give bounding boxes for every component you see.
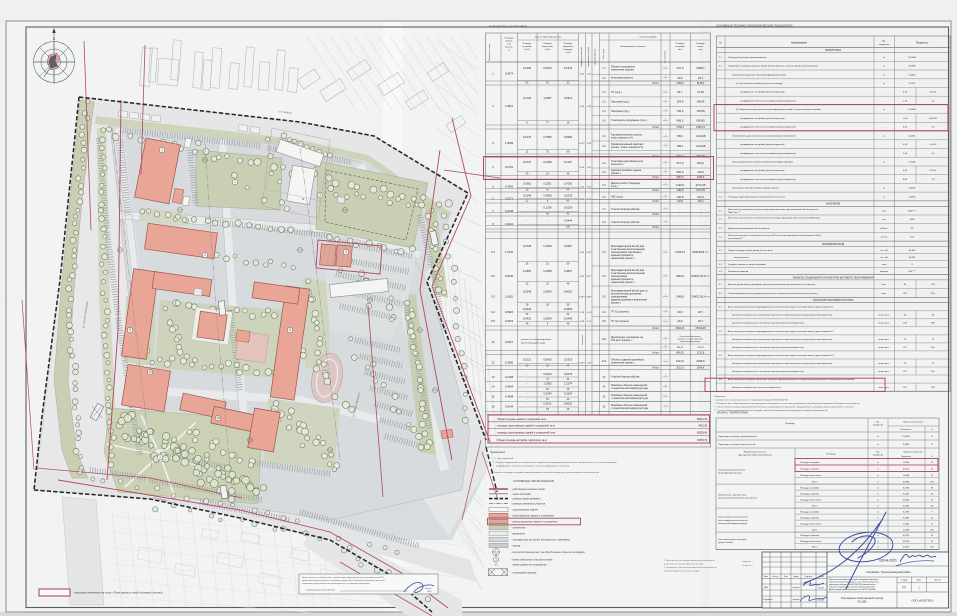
svg-text:0,2294: 0,2294 <box>543 392 552 396</box>
svg-text:0,1024: 0,1024 <box>564 194 573 198</box>
svg-text:0,0503: 0,0503 <box>564 307 573 311</box>
svg-text:9.5: 9.5 <box>602 320 606 323</box>
svg-text:-: - <box>680 376 681 379</box>
svg-text:0,0926: 0,0926 <box>505 310 514 314</box>
svg-text:(сущ.): (сущ.) <box>611 185 618 188</box>
svg-text:1,9910: 1,9910 <box>505 104 514 108</box>
svg-text:ТЕРРИТОРИИ: ТЕРРИТОРИИ <box>825 50 841 52</box>
svg-text:АЗС (сущ.): АЗС (сущ.) <box>611 196 623 199</box>
svg-text:не показано: не показано <box>582 335 584 345</box>
svg-text:1: 1 <box>665 195 666 197</box>
svg-text:-: - <box>700 221 701 224</box>
svg-text:установленных границ. Проектом: установленных границ. Проектом границы <box>664 564 704 566</box>
svg-text:(зона коммунальных объектов: (зона коммунальных объектов <box>718 520 748 522</box>
svg-text:Итого:: Итого: <box>653 127 660 129</box>
svg-text:0,2728: 0,2728 <box>523 244 532 248</box>
svg-text:80529,04: 80529,04 <box>697 432 708 435</box>
svg-text:Общеобразовательные учреждения: Общеобразовательные учреждения (расчетно… <box>728 293 818 295</box>
svg-text:3,4210: 3,4210 <box>903 469 910 471</box>
svg-text:1600****: 1600**** <box>908 211 916 213</box>
svg-text:-: - <box>527 393 528 396</box>
svg-text:1,0083: 1,0083 <box>505 141 514 145</box>
svg-text:-: - <box>527 220 528 223</box>
svg-text:маш.-мест: маш.-мест <box>879 387 890 389</box>
svg-text:20,0: 20,0 <box>677 319 683 323</box>
svg-text:ОСНОВНЫЕ ТЕХНИКО-ЭКОНОМИЧЕСКИ: ОСНОВНЫЕ ТЕХНИКО-ЭКОНОМИЧЕСКИЕ ПОКАЗАТЕЛ… <box>716 24 792 28</box>
svg-text:Площадь застройки: Площадь застройки <box>800 486 820 489</box>
svg-text:тыс. м2: тыс. м2 <box>880 257 888 259</box>
svg-text:-: - <box>700 386 701 389</box>
svg-text:0,0408: 0,0408 <box>543 160 552 164</box>
svg-text:9.1: 9.1 <box>491 250 495 254</box>
svg-text:0,4-0,85: 0,4-0,85 <box>929 118 938 120</box>
svg-text:0,2248: 0,2248 <box>505 209 514 213</box>
svg-text:уточнить на стадии подготовки: уточнить на стадии подготовки <box>521 339 552 341</box>
svg-text:13,3464: 13,3464 <box>908 57 917 59</box>
svg-text:маш.-мест: маш.-мест <box>879 363 890 365</box>
svg-text:Площадь: Площадь <box>523 43 531 45</box>
svg-text:0,2100: 0,2100 <box>523 66 532 70</box>
svg-text:га (%): га (%) <box>565 52 571 54</box>
svg-text:Итого:: Итого: <box>653 368 660 370</box>
svg-text:Зоны коммунальных объектов: Зоны коммунальных объектов <box>718 517 748 519</box>
svg-text:Итого:: Итого: <box>653 328 660 330</box>
svg-text:чел./га: чел./га <box>881 237 889 239</box>
svg-text:Общественно-деловая зона (мног: Общественно-деловая зона (многофункциона… <box>732 73 786 76</box>
svg-text:Зона коммунальных объектов инж: Зона коммунальных объектов инженерной ин… <box>732 161 793 164</box>
svg-text:План красных линий (основной ч: План красных линий (основной чертеж) <box>841 597 884 600</box>
svg-text:Зона жилых улиц В застройке (у: Зона жилых улиц В застройке (улица Сабит… <box>732 187 779 190</box>
svg-text:0,9436: 0,9436 <box>505 274 514 278</box>
svg-text:0,6015: 0,6015 <box>564 289 573 293</box>
svg-text:2,0108: 2,0108 <box>909 162 916 164</box>
svg-text:Автостоянки для хранения индив: Автостоянки для хранения индивидуального… <box>728 306 834 309</box>
svg-text:Площадь озеленения: Площадь озеленения <box>800 541 821 543</box>
svg-text:Детские дошкольные учреждения: Детские дошкольные учреждения (расчетное… <box>728 284 816 286</box>
svg-text:0,18**: 0,18** <box>579 297 585 299</box>
svg-text:Разработ.: Разработ. <box>763 599 773 601</box>
svg-text:1.1: 1.1 <box>602 67 606 70</box>
svg-text:коэффициент плотности застройк: коэффициент плотности застройки (проект.… <box>740 152 796 155</box>
svg-text:1: 1 <box>234 180 236 184</box>
svg-text:Китова: Китова <box>425 588 432 590</box>
svg-text:Проект выполнен в соответствии: Проект выполнен в соответствии с требова… <box>302 576 384 579</box>
svg-text:-: - <box>680 396 681 399</box>
svg-text:5098,7: 5098,7 <box>696 66 705 70</box>
svg-text:ТРАНСПОРТНАЯ ИНФРАСТРУКТУРА: ТРАНСПОРТНАЯ ИНФРАСТРУКТУРА <box>813 299 854 302</box>
svg-text:- номер земельного участка на: - номер земельного участка на плане <box>511 559 553 562</box>
svg-text:-: - <box>527 383 528 386</box>
svg-text:(зона объектов рекламного назн: (зона объектов рекламного назначения) <box>718 498 757 500</box>
svg-text:1: 1 <box>665 100 666 102</box>
svg-text:3.2: 3.2 <box>602 145 606 148</box>
svg-text:Кол-во этажей: Кол-во этажей <box>664 51 667 63</box>
svg-text:0,1021: 0,1021 <box>523 357 532 361</box>
svg-text:2: 2 <box>204 253 206 257</box>
svg-text:площадь проектируемых зданий и: площадь проектируемых зданий и сооружени… <box>497 432 556 435</box>
svg-text:1,1574: 1,1574 <box>564 382 573 386</box>
svg-text:-: - <box>680 386 681 389</box>
svg-text:Итого:: Итого: <box>653 83 660 85</box>
svg-text:застройки квартала: застройки квартала <box>594 49 597 65</box>
svg-text:на человека)***: на человека)*** <box>728 238 744 240</box>
svg-text:10.1: 10.1 <box>602 338 607 341</box>
svg-text:0,2722: 0,2722 <box>505 165 514 169</box>
svg-text:ТП №1 (проект.): ТП №1 (проект.) <box>611 311 629 314</box>
svg-text:Примечания: Примечания <box>490 450 506 454</box>
svg-text:2.2: 2.2 <box>602 101 606 104</box>
svg-text:Участки благоустройства: Участки благоустройства <box>611 221 640 224</box>
svg-text:1564,74: 1564,74 <box>696 126 705 129</box>
svg-text:0,1739: 0,1739 <box>903 511 910 513</box>
svg-text:7.1: 7.1 <box>602 208 606 211</box>
svg-text:786,1: 786,1 <box>677 144 684 148</box>
svg-text:БАЛАНС ТЕРРИТОРИИ: БАЛАНС ТЕРРИТОРИИ <box>717 411 748 415</box>
svg-text:636,85: 636,85 <box>696 118 705 122</box>
svg-text:Примечания: Примечания <box>714 396 726 398</box>
svg-text:-: - <box>527 403 528 406</box>
svg-text:- вносимые изменения на листе: - вносимые изменения на листе «План крас… <box>73 591 164 595</box>
svg-text:объектов добровольного число в: объектов добровольного число видов <box>664 571 699 573</box>
svg-text:функциональному использованию: функциональному использованию <box>738 454 772 457</box>
svg-text:21460,3 В,9 т.ч.: 21460,3 В,9 т.ч. <box>691 274 710 278</box>
svg-text:Проектные решения: Проектные решения <box>903 422 923 424</box>
svg-text:Площадь: Площадь <box>505 38 514 40</box>
svg-text:Средняя этажность жилой застро: Средняя этажность жилой застройки <box>728 263 766 266</box>
svg-text:1,9068: 1,9068 <box>903 475 910 477</box>
svg-text:0,34**: 0,34** <box>579 363 585 365</box>
svg-text:участка,: участка, <box>505 47 513 49</box>
svg-text:назначения (проект.): назначения (проект.) <box>611 281 635 284</box>
svg-text:Площадь застройки: Площадь застройки <box>800 461 820 464</box>
svg-text:%: % <box>931 436 933 438</box>
svg-text:0,5005: 0,5005 <box>903 547 910 549</box>
svg-text:1,0811: 1,0811 <box>505 295 514 299</box>
svg-text:Всего: Всего <box>812 529 818 531</box>
svg-text:Главный архитектор проекта: Главный архитектор проекта <box>306 589 336 592</box>
svg-text:УСЛОВНЫЕ ОБОЗНАЧЕНИЯ: УСЛОВНЫЕ ОБОЗНАЧЕНИЯ <box>513 479 554 483</box>
svg-text:20,0: 20,0 <box>677 310 683 314</box>
svg-text:0,7992: 0,7992 <box>505 185 514 189</box>
svg-text:70,53: 70,53 <box>697 90 704 94</box>
svg-text:896,25: 896,25 <box>677 347 684 349</box>
svg-text:2021г.: 2021г. <box>427 591 432 593</box>
svg-text:2,4634: 2,4634 <box>505 385 514 389</box>
svg-text:1: 1 <box>665 91 666 93</box>
svg-text:ГАП: ГАП <box>764 586 768 589</box>
svg-text:Показатель: Показатель <box>901 456 911 458</box>
svg-text:2221,8: 2221,8 <box>697 352 705 355</box>
svg-text:5.1: 5.1 <box>602 184 606 187</box>
svg-text:Зона жилых улиц в застройке: Зона жилых улиц в застройке <box>718 538 747 541</box>
svg-text:2.4: 2.4 <box>602 119 606 122</box>
svg-text:4.1: 4.1 <box>602 162 606 165</box>
svg-text:-: - <box>527 373 528 376</box>
svg-text:09.2021: 09.2021 <box>818 588 825 590</box>
svg-text:0,0446: 0,0446 <box>564 316 573 320</box>
svg-text:0,16**: 0,16** <box>579 143 585 145</box>
svg-text:Участки благоустройства: Участки благоустройства <box>611 376 640 379</box>
svg-text:2046,6: 2046,6 <box>696 359 705 363</box>
svg-text:1: 1 <box>665 207 666 209</box>
svg-text:ТП (сущ.): ТП (сущ.) <box>611 91 622 94</box>
svg-text:560,0: 560,0 <box>677 170 684 174</box>
svg-text:0,4-0,8: 0,4-0,8 <box>930 144 938 146</box>
svg-text:Наименование объектов: Наименование объектов <box>620 46 646 48</box>
svg-text:845****: 845**** <box>908 271 915 273</box>
svg-text:Коэффициент плотности: Коэффициент плотности <box>587 47 590 67</box>
svg-text:Площадь покрытий: Площадь покрытий <box>800 516 820 519</box>
svg-text:15: 15 <box>492 395 495 399</box>
svg-text:9,5398: 9,5398 <box>909 66 916 68</box>
svg-text:12: 12 <box>492 361 495 365</box>
svg-text:нормативов градостроительного: нормативов градостроительного проектиров… <box>302 583 369 585</box>
svg-text:0,6952: 0,6952 <box>564 135 573 139</box>
svg-text:Площадь озеленения: Площадь озеленения <box>800 475 821 477</box>
svg-text:843,0: 843,0 <box>697 161 704 165</box>
svg-text:ООО «АСБ ГИС»: ООО «АСБ ГИС» <box>911 599 934 603</box>
svg-text:(проект., класс опасности V): (проект., класс опасности V) <box>611 146 643 149</box>
svg-text:13,3404: 13,3404 <box>902 436 910 438</box>
svg-text:1190,5: 1190,5 <box>676 183 685 187</box>
svg-text:2,5***: 2,5*** <box>586 276 592 278</box>
svg-text:Насосная (сущ.): Насосная (сущ.) <box>611 100 630 103</box>
svg-text:проектной документации: проектной документации <box>680 340 700 343</box>
svg-text:0,2109: 0,2109 <box>543 372 552 376</box>
svg-text:сборку и на: сборку и на <box>742 565 754 567</box>
svg-text:745,95: 745,95 <box>696 109 705 113</box>
svg-text:6.1: 6.1 <box>602 196 606 199</box>
svg-text:3.1: 3.1 <box>602 135 606 138</box>
svg-text:5: 5 <box>289 328 291 332</box>
svg-text:Листов: Листов <box>934 580 942 582</box>
svg-text:-: - <box>700 396 701 399</box>
svg-text:Стадия: Стадия <box>900 580 907 582</box>
svg-text:0,1625: 0,1625 <box>543 244 552 248</box>
svg-text:14: 14 <box>492 385 495 389</box>
svg-text:- существующие здания: - существующие здания <box>511 509 538 512</box>
svg-text:(улица Сабита): (улица Сабита) <box>718 542 733 544</box>
svg-text:-: - <box>680 406 681 409</box>
svg-text:Наименование зоны по: Наименование зоны по <box>744 451 767 453</box>
svg-text:Автостоянки для хранения индив: Автостоянки для хранения индивидуального… <box>728 330 834 333</box>
svg-text:1: 1 <box>665 161 666 163</box>
svg-text:1: 1 <box>665 405 666 407</box>
svg-text:Участки благоустройства: Участки благоустройства <box>611 208 640 211</box>
svg-text:0,5005: 0,5005 <box>909 188 916 190</box>
svg-text:- границы проектирования: - границы проектирования <box>511 498 541 501</box>
svg-text:М1:1000: М1:1000 <box>858 602 868 604</box>
svg-text:4: 4 <box>345 250 347 254</box>
svg-text:Всего: Всего <box>812 547 818 549</box>
svg-text:9.3: 9.3 <box>602 296 606 299</box>
svg-text:Автостоянки для хранения индив: Автостоянки для хранения индивидуального… <box>728 354 834 357</box>
svg-text:Количество машино-мест (расче: Количество машино-мест (расчетное/принят… <box>732 387 781 389</box>
svg-text:графикой: графикой <box>742 560 751 563</box>
svg-text:%: % <box>931 429 933 431</box>
svg-text:Площадь озеленения: Площадь озеленения <box>800 499 821 501</box>
svg-text:2. Параметры существующих об: 2. Параметры существующих объектов благо… <box>664 566 717 569</box>
svg-text:0,0054: 0,0054 <box>543 316 552 320</box>
svg-text:1: 1 <box>665 109 666 111</box>
svg-text:0,4402: 0,4402 <box>909 135 916 137</box>
svg-text:3409,98 В т.ч.: 3409,98 В т.ч. <box>692 250 709 254</box>
svg-text:1: 1 <box>665 395 666 397</box>
svg-text:1: 1 <box>665 385 666 387</box>
svg-text:1: 1 <box>665 183 666 185</box>
svg-text:44,483: 44,483 <box>909 257 916 259</box>
svg-text:коэффициента плотности застрой: коэффициента плотности застройки, а так … <box>496 465 570 468</box>
svg-text:1881,0: 1881,0 <box>676 274 685 278</box>
svg-text:класс опасности V): класс опасности V) <box>611 137 633 140</box>
svg-text:** - Получить разрешение на о: ** - Получить разрешение на отклонение о… <box>492 462 617 464</box>
svg-text:чел.: чел. <box>882 211 887 213</box>
svg-text:ПП: ПП <box>902 588 906 590</box>
svg-text:измерения: измерения <box>873 455 883 457</box>
svg-text:(многофункциональная): (многофункциональная) <box>718 472 742 475</box>
svg-text:0,0923: 0,0923 <box>505 319 514 323</box>
svg-text:га (%): га (%) <box>545 49 551 51</box>
svg-text:140,8: 140,8 <box>677 195 684 199</box>
svg-text:Коэффициент застройки: Коэффициент застройки <box>580 47 583 67</box>
svg-text:Техническое сооружение (сущ.): Техническое сооружение (сущ.) <box>611 119 647 122</box>
svg-text:Кол.уч: Кол.уч <box>773 576 779 578</box>
svg-text:0,1614: 0,1614 <box>903 493 910 495</box>
svg-text:Лист: Лист <box>917 580 922 582</box>
svg-text:Котельная (проект.): Котельная (проект.) <box>611 77 633 80</box>
svg-text:озеленения,: озеленения, <box>542 46 553 48</box>
svg-text:1414,98: 1414,98 <box>696 134 706 138</box>
svg-text:маш.-мест: маш.-мест <box>879 339 890 341</box>
svg-text:коэффициент застройки (проект.: коэффициент застройки (проект./норматив) <box>740 91 785 94</box>
svg-text:0,1018: 0,1018 <box>564 206 573 210</box>
svg-text:1,05**: 1,05** <box>586 297 592 299</box>
svg-text:696,5: 696,5 <box>677 118 684 122</box>
svg-text:4912,28: 4912,28 <box>698 425 707 428</box>
svg-text:* - 1 этаж подземный.: * - 1 этаж подземный. <box>492 457 514 460</box>
svg-text:1: 1 <box>665 220 666 222</box>
svg-text:1021,0: 1021,0 <box>676 359 685 363</box>
svg-text:Площадь озеленения: Площадь озеленения <box>800 523 821 525</box>
svg-text:*** - Расчет балансов наличия: *** - Расчет балансов наличия нормативно… <box>714 406 853 409</box>
svg-text:правилами землепользования и з: правилами землепользования и застройки, … <box>302 579 385 582</box>
svg-text:270+: 270+ <box>931 371 937 373</box>
svg-text:Общественно - деловая зона: Общественно - деловая зона <box>718 494 747 496</box>
svg-text:85441,33: 85441,33 <box>697 418 708 421</box>
svg-text:-: - <box>527 207 528 210</box>
svg-text:0,1070: 0,1070 <box>523 135 532 139</box>
svg-text:21403,3 В,4 т.ч.: 21403,3 В,4 т.ч. <box>691 295 710 299</box>
svg-text:0,3444: 0,3444 <box>505 222 514 226</box>
svg-text:Ед.: Ед. <box>876 422 880 424</box>
svg-text:220+: 220+ <box>931 293 937 295</box>
svg-text:Территория в границах красных: Территория в границах красных линий жило… <box>728 65 819 68</box>
svg-text:2221,8: 2221,8 <box>697 347 704 349</box>
svg-text:0,7030: 0,7030 <box>564 181 573 185</box>
svg-text:0,0615: 0,0615 <box>543 66 552 70</box>
svg-text:0,6023: 0,6023 <box>564 402 573 406</box>
svg-text:Баланс территории участка: Баланс территории участка <box>535 37 562 39</box>
svg-text:многоэтажных: многоэтажных <box>734 257 749 259</box>
svg-text:коэффициент плотности застройк: коэффициент плотности застройки (проект.… <box>740 126 796 129</box>
svg-text:Китова: Китова <box>792 587 800 589</box>
svg-text:- реконструируемое здание и со: - реконструируемое здание и сооружение <box>511 521 558 524</box>
svg-text:2.3: 2.3 <box>602 110 606 113</box>
svg-text:0,1230: 0,1230 <box>543 206 552 210</box>
svg-text:мест: мест <box>882 293 887 295</box>
svg-text:-: - <box>680 208 681 211</box>
svg-text:0,1227: 0,1227 <box>564 160 573 164</box>
svg-text:0,3296: 0,3296 <box>505 361 514 365</box>
svg-text:0,4074: 0,4074 <box>505 72 514 76</box>
svg-text:коэффициент застройки (проект.: коэффициент застройки (проект./норматив) <box>740 169 785 172</box>
svg-text:Лист: Лист <box>784 576 788 578</box>
svg-text:%: % <box>931 444 933 446</box>
svg-text:0,2887: 0,2887 <box>903 517 910 519</box>
svg-text:застройки,: застройки, <box>522 45 532 48</box>
svg-text:этаж: этаж <box>882 264 887 266</box>
svg-text:- пешеходный переход: - пешеходный переход <box>511 571 537 574</box>
svg-text:1948,5: 1948,5 <box>676 295 685 299</box>
svg-text:-: - <box>680 221 681 224</box>
svg-text:9.2: 9.2 <box>602 275 606 278</box>
svg-text:N по плану: N по плану <box>603 49 605 59</box>
svg-text:квартир: квартир <box>880 271 889 273</box>
svg-text:г.Челябинск, Тракторозаводски: г.Челябинск, Тракторозаводский район <box>866 571 912 574</box>
svg-text:маш.-мест: маш.-мест <box>879 315 890 317</box>
svg-text:Площадь: Площадь <box>564 43 572 45</box>
svg-text:2046,6: 2046,6 <box>697 367 705 370</box>
svg-text:Площадь: Площадь <box>826 453 835 455</box>
svg-text:коэффициент застройки (проект.: коэффициент застройки (проект./норматив) <box>740 143 785 146</box>
svg-text:4,0866: 4,0866 <box>903 444 910 446</box>
svg-text:м2/чел.: м2/чел. <box>880 228 888 230</box>
svg-text:0,1881: 0,1881 <box>523 269 532 273</box>
svg-text:1: 1 <box>665 76 666 78</box>
svg-text:тыс. м2: тыс. м2 <box>880 250 888 252</box>
svg-text:1021,0: 1021,0 <box>676 367 684 370</box>
svg-text:Численность населения (согласн: Численность населения (согласно норматив… <box>728 208 819 211</box>
svg-text:0,3444: 0,3444 <box>564 219 573 223</box>
svg-text:Всего: Всего <box>812 481 818 483</box>
svg-text:2728,24: 2728,24 <box>675 250 685 254</box>
svg-text:0,9144: 0,9144 <box>505 405 514 409</box>
svg-text:Наименования: Наименования <box>791 43 808 45</box>
svg-text:0,6367: 0,6367 <box>564 244 573 248</box>
svg-text:(реконстр.): (реконстр.) <box>611 163 624 166</box>
svg-text:1,3052: 1,3052 <box>543 382 552 386</box>
svg-text:29,7: 29,7 <box>698 76 704 80</box>
svg-text:а) Зона жилой застройки, расче: а) Зона жилой застройки, расчетная площа… <box>736 82 784 85</box>
svg-text:9.3: 9.3 <box>491 295 495 299</box>
svg-text:застройки,: застройки, <box>675 45 685 48</box>
svg-text:0,2843: 0,2843 <box>543 289 552 293</box>
svg-text:Площадь: Площадь <box>676 43 684 45</box>
svg-text:1: 1 <box>665 295 666 297</box>
svg-text:0,2914: 0,2914 <box>564 96 573 100</box>
svg-text:9.4: 9.4 <box>491 310 495 314</box>
svg-text:Показатель: Показатель <box>916 43 929 45</box>
svg-text:0,0660: 0,0660 <box>543 357 552 361</box>
svg-text:0,0423: 0,0423 <box>523 316 532 320</box>
svg-text:Общественно-деловая зона: Общественно-деловая зона <box>718 470 746 472</box>
svg-text:6604,24: 6604,24 <box>676 327 685 330</box>
svg-text:100: 100 <box>566 226 571 229</box>
svg-text:(проект.): (проект.) <box>611 172 621 175</box>
svg-text:148,41: 148,41 <box>696 100 705 104</box>
svg-text:1,2040: 1,2040 <box>903 462 910 464</box>
svg-text:Площадь покрытий: Площадь покрытий <box>800 492 820 495</box>
